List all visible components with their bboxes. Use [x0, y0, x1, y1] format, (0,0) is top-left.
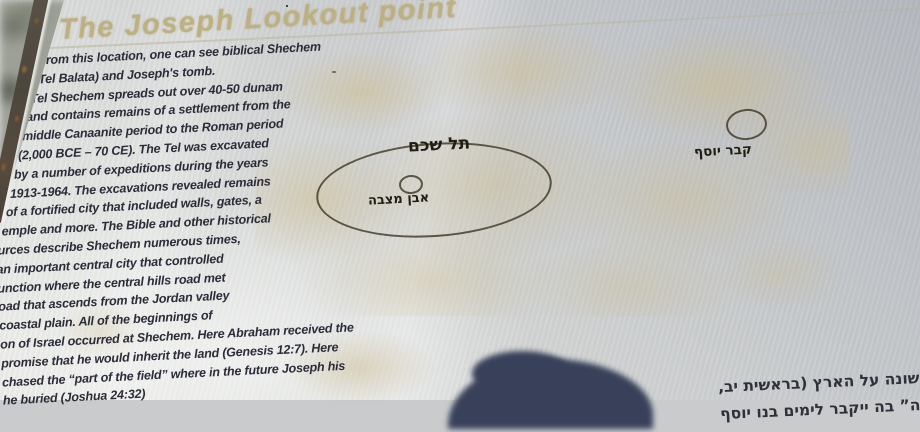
- matzeva-stone-label: אבן מצבה: [368, 190, 430, 208]
- sign-panel: The Joseph Lookout point From this locat…: [0, 0, 920, 400]
- photo-of-information-sign: { "sign": { "title": "The Joseph Lookout…: [0, 0, 920, 400]
- photographer-shadow: [440, 345, 670, 405]
- josephs-tomb-label: קבר יוסף: [694, 141, 753, 160]
- tel-shechem-label: תל שכם: [408, 133, 471, 156]
